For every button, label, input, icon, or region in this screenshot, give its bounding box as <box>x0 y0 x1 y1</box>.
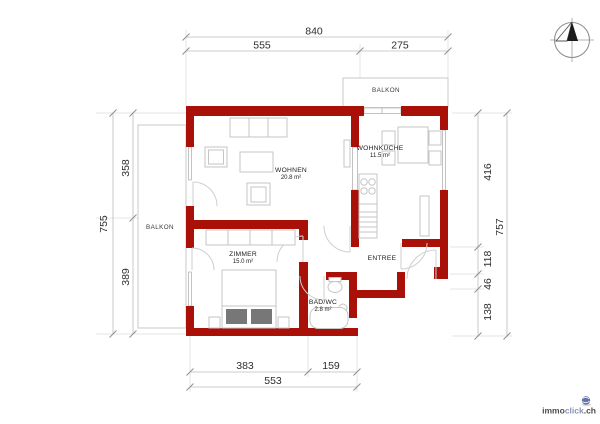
room-label-zimmer: ZIMMER <box>229 251 257 258</box>
furniture-living <box>205 118 350 205</box>
logo: immoclick.ch <box>542 396 596 415</box>
room-label-wohnen: WOHNEN <box>275 167 307 174</box>
furniture-kitchen <box>359 127 441 238</box>
logo-part-ch: .ch <box>584 406 596 416</box>
door-wohnen-balcony <box>193 182 217 206</box>
logo-part-click: click <box>565 406 584 416</box>
logo-text: immoclick.ch <box>542 406 596 416</box>
kitchen-cabinet <box>420 196 429 236</box>
door-zimmer-balcony <box>192 248 214 270</box>
tv-board <box>344 140 350 167</box>
dim-right-b: 118 <box>482 250 494 267</box>
dim-right-d: 138 <box>482 303 494 321</box>
room-area-bad: 2.8 m² <box>314 307 331 313</box>
dim-left-upper: 358 <box>120 159 132 177</box>
furniture-bedroom <box>206 230 295 328</box>
logo-part-immo: immo <box>542 406 565 416</box>
room-label-balkon-top: BALKON <box>372 87 400 94</box>
coffee-table <box>240 152 273 172</box>
room-area-wohnen: 20.8 m² <box>281 175 301 181</box>
dim-left-lower: 389 <box>120 268 132 286</box>
toilet-tank <box>329 278 341 282</box>
dim-bottom-left: 383 <box>236 360 254 372</box>
room-label-entree: ENTREE <box>368 255 397 262</box>
room-area-wohnkueche: 11.5 m² <box>370 153 390 159</box>
chair <box>382 131 395 145</box>
dim-top-total: 840 <box>305 26 323 38</box>
floorplan-page: 840 555 275 755 358 389 416 118 46 138 7… <box>0 0 600 424</box>
dim-bottom-right: 159 <box>322 360 340 372</box>
window-wohnen <box>189 147 192 180</box>
room-label-wohnkueche: WOHNKÜCHE <box>357 144 404 152</box>
room-area-zimmer: 15.0 m² <box>233 259 253 265</box>
dim-right-c: 46 <box>482 278 494 290</box>
window-zimmer <box>189 272 192 306</box>
door-apartment-entrance <box>407 250 436 279</box>
room-label-bad: BAD/WC <box>309 299 337 306</box>
room-label-balkon-left: BALKON <box>146 224 174 231</box>
pillow <box>226 309 247 324</box>
nightstand <box>209 317 220 328</box>
floor-plan-svg: 840 555 275 755 358 389 416 118 46 138 7… <box>0 0 600 424</box>
kitchen-partition-glass <box>353 147 358 190</box>
window-wohnkueche <box>443 130 446 190</box>
chair <box>429 131 441 145</box>
dim-top-left: 555 <box>253 40 271 52</box>
door-wohnen-entree <box>324 226 350 252</box>
nightstand <box>278 317 289 328</box>
dim-left-total: 755 <box>98 215 110 233</box>
sofa <box>230 118 287 137</box>
dim-right-total: 757 <box>494 218 506 236</box>
pillow <box>251 309 272 324</box>
dim-top-right: 275 <box>391 40 409 52</box>
north-arrow-icon <box>550 18 594 62</box>
toilet <box>328 282 342 293</box>
chair <box>429 151 441 165</box>
dim-right-a: 416 <box>482 163 494 181</box>
dim-bottom-total: 553 <box>264 375 282 387</box>
